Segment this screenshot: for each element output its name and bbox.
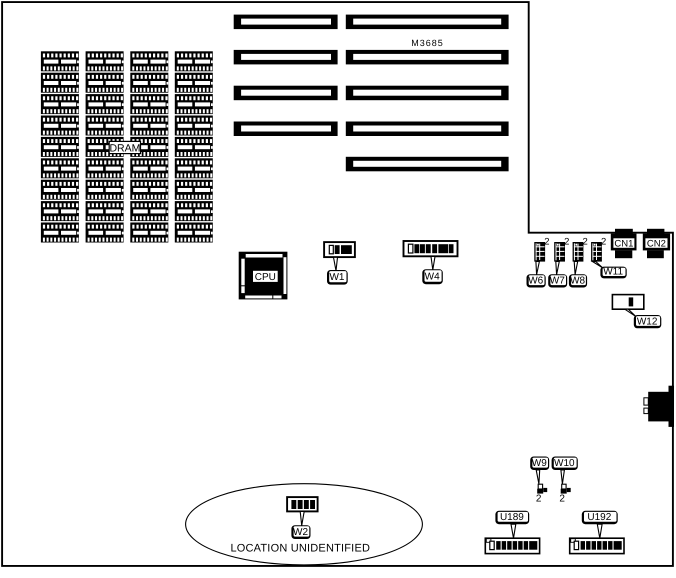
svg-text:LOCATION UNIDENTIFIED: LOCATION UNIDENTIFIED	[230, 542, 370, 554]
svg-text:W2: W2	[293, 527, 308, 538]
svg-text:2: 2	[601, 237, 606, 248]
svg-text:W7: W7	[550, 276, 565, 287]
svg-text:W1: W1	[329, 272, 344, 283]
svg-text:U192: U192	[587, 512, 611, 523]
svg-text:2: 2	[564, 237, 569, 248]
svg-text:W12: W12	[637, 316, 658, 327]
svg-text:2: 2	[544, 237, 549, 248]
svg-text:2: 2	[583, 237, 588, 248]
svg-text:M3685: M3685	[411, 38, 444, 48]
svg-text:DRAM: DRAM	[109, 142, 140, 154]
svg-text:U189: U189	[500, 512, 524, 523]
svg-text:W8: W8	[570, 276, 585, 287]
svg-text:W4: W4	[425, 272, 440, 283]
svg-text:CN1: CN1	[614, 239, 633, 250]
svg-text:2: 2	[536, 494, 542, 505]
svg-text:W6: W6	[528, 276, 543, 287]
svg-text:W11: W11	[603, 267, 623, 278]
svg-text:W10: W10	[554, 458, 575, 469]
svg-text:2: 2	[559, 494, 565, 505]
svg-text:CN2: CN2	[647, 239, 666, 250]
svg-text:CPU: CPU	[255, 272, 276, 283]
svg-text:W9: W9	[532, 458, 547, 469]
